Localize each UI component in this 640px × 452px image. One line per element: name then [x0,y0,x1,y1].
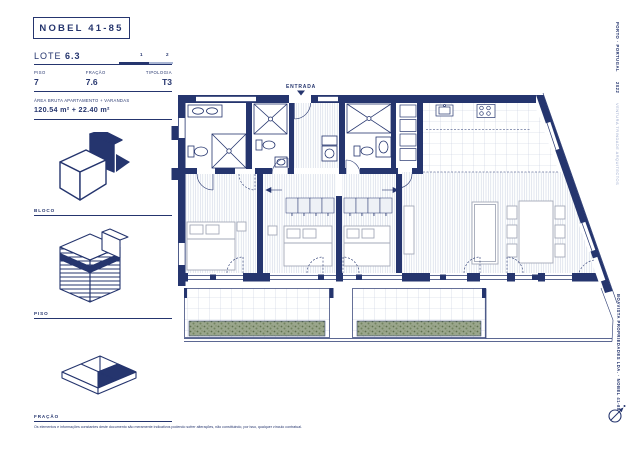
planter [357,321,481,336]
chair [507,244,517,257]
entrance-label: ENTRADA [286,84,316,90]
chair [555,206,565,219]
dining-table [519,201,553,263]
nightstand [237,222,246,231]
closet-unit [400,120,416,132]
console [404,206,414,254]
closet-unit [400,105,416,117]
toilet [256,140,262,150]
closet-unit [400,149,416,161]
toilet [188,146,194,157]
closet-unit [400,134,416,146]
chair [555,244,565,257]
laundry-cabinet [322,136,337,145]
chair [555,225,565,238]
entrance-marker-icon [297,91,305,96]
balconies [184,288,613,342]
chair [507,225,517,238]
cooktop [477,105,495,118]
floor-plan: ENTRADA [0,0,640,452]
toilet [354,146,360,156]
entrance-callout: ENTRADA [286,84,316,96]
planter [189,321,325,336]
chair [507,206,517,219]
datasheet-page: NOBEL 41-85 LOTE 6.3 1 2 PISO 7 FRAÇÃO 7… [0,0,640,452]
nightstand [268,226,277,235]
